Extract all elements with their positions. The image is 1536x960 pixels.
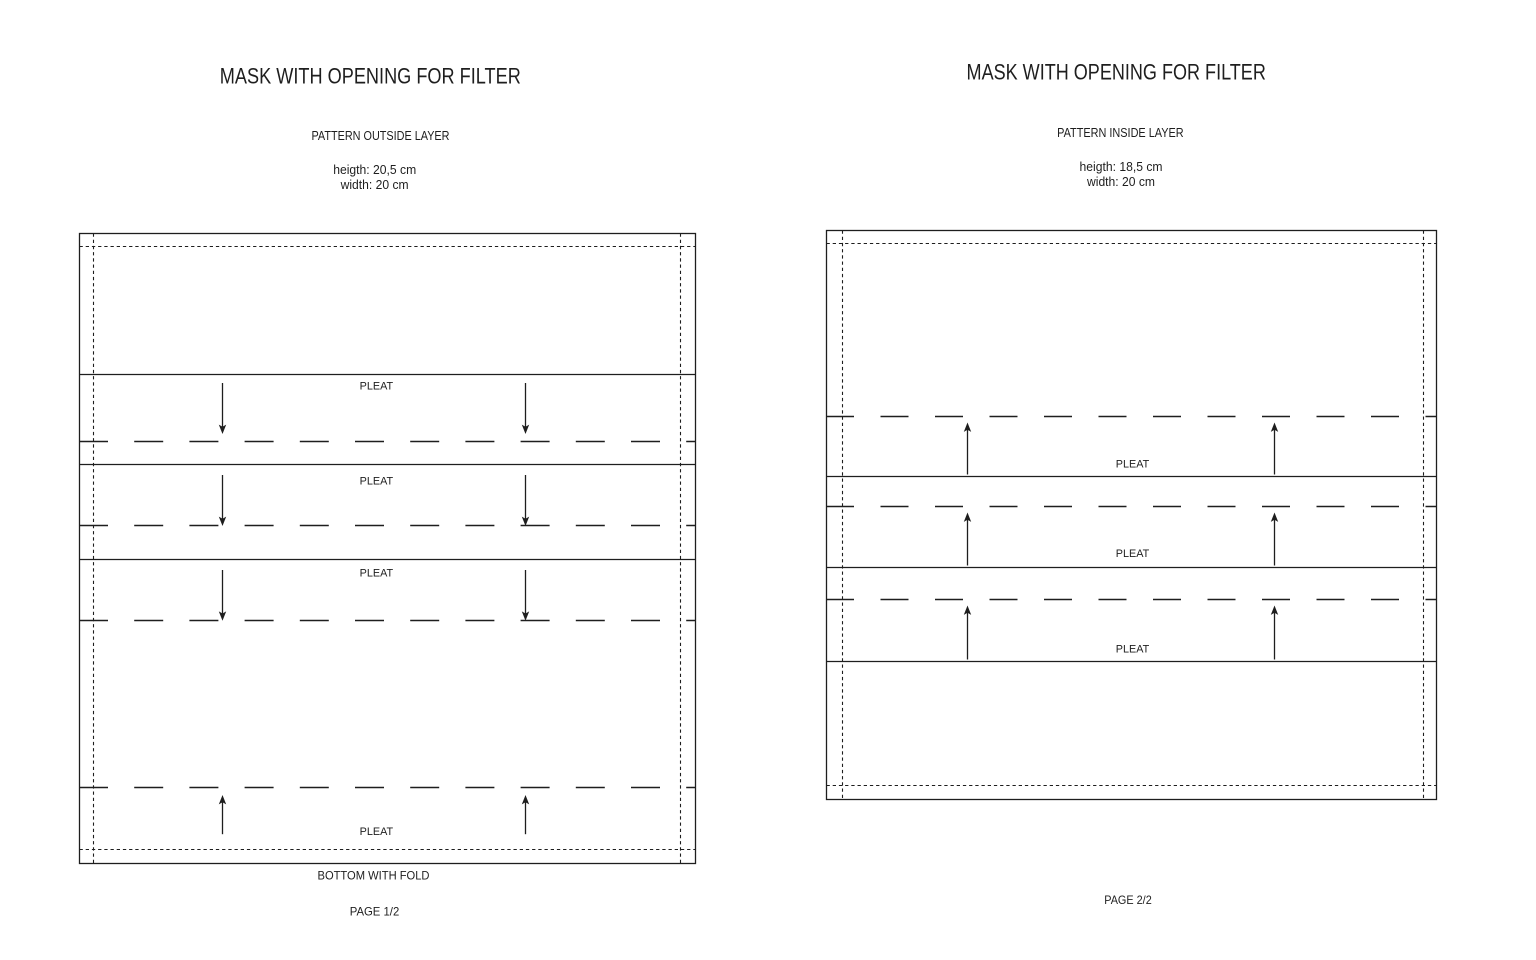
- svg-text:PATTERN OUTSIDE LAYER: PATTERN OUTSIDE LAYER: [312, 129, 450, 143]
- svg-text:BOTTOM WITH FOLD: BOTTOM WITH FOLD: [318, 869, 430, 883]
- svg-text:width: 20 cm: width: 20 cm: [1086, 174, 1155, 189]
- svg-text:PATTERN INSIDE LAYER: PATTERN INSIDE LAYER: [1057, 126, 1184, 140]
- svg-text:MASK WITH OPENING FOR FILTER: MASK WITH OPENING FOR FILTER: [967, 60, 1266, 85]
- svg-text:PLEAT: PLEAT: [360, 476, 394, 488]
- svg-text:PLEAT: PLEAT: [1116, 644, 1150, 656]
- svg-text:PAGE 2/2: PAGE 2/2: [1104, 893, 1152, 907]
- svg-text:PLEAT: PLEAT: [360, 568, 394, 580]
- svg-text:MASK WITH OPENING FOR FILTER: MASK WITH OPENING FOR FILTER: [220, 63, 521, 88]
- svg-text:PLEAT: PLEAT: [1116, 548, 1150, 560]
- svg-text:PLEAT: PLEAT: [360, 381, 394, 393]
- svg-text:PLEAT: PLEAT: [1116, 459, 1150, 471]
- svg-text:width: 20 cm: width: 20 cm: [340, 177, 409, 192]
- svg-text:PLEAT: PLEAT: [360, 826, 394, 838]
- svg-text:heigth: 18,5 cm: heigth: 18,5 cm: [1080, 159, 1163, 174]
- svg-text:PAGE 1/2: PAGE 1/2: [350, 905, 400, 919]
- svg-text:heigth: 20,5 cm: heigth: 20,5 cm: [333, 162, 416, 177]
